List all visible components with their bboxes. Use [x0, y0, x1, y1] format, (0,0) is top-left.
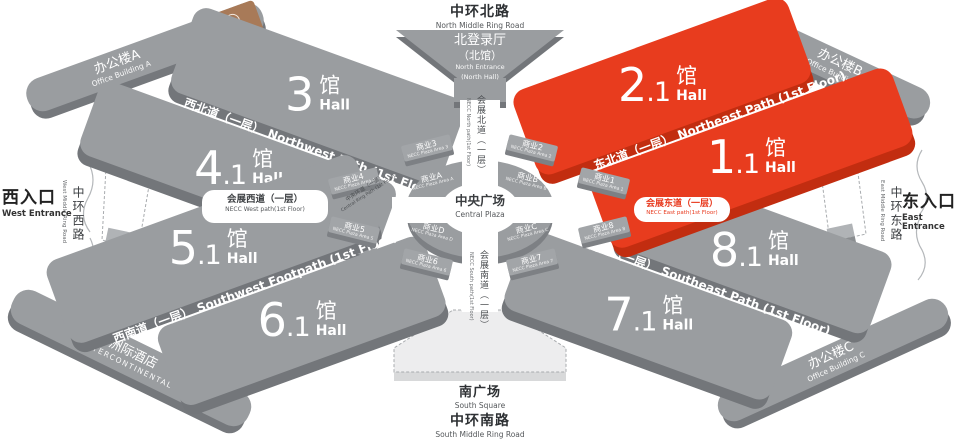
hall-2-1-label: 2.1 馆Hall: [618, 64, 707, 108]
necc-east-path-label: 会展东道（一层） NECC East path(1st Floor): [634, 197, 730, 222]
north-entrance-label: 北登录厅 （北馆） North Entrance (North Hall): [396, 34, 564, 80]
hall-en-suffix: Hall: [226, 252, 257, 267]
hall-7-1-label: 7.1 馆Hall: [604, 294, 693, 338]
west-entrance-label[interactable]: 西入口 West Entrance: [2, 190, 72, 219]
hall-cn-suffix: 馆: [676, 65, 707, 87]
hall-en-suffix: Hall: [320, 99, 351, 114]
hall-cn-suffix: 馆: [315, 300, 346, 322]
hall-cn-suffix: 馆: [768, 230, 799, 252]
east-ring-road-en: East Middle Ring Road: [879, 180, 885, 241]
necc-south-path-en: NECC South path(1st Floor): [468, 252, 474, 321]
hall-number: 2.1: [618, 64, 670, 108]
hall-en-suffix: Hall: [676, 89, 707, 104]
necc-venue-map: 办公楼A Office Building A 办公楼B Office Build…: [0, 0, 960, 440]
necc-south-path-zh: 会展南道（一层）: [477, 250, 490, 330]
hall-en-suffix: Hall: [768, 254, 799, 269]
east-entrance-label[interactable]: 东入口 East Entrance: [902, 194, 960, 231]
hall-cn-suffix: 馆: [765, 137, 796, 159]
hall-cn-suffix: 馆: [662, 295, 693, 317]
hall-number: 7.1: [604, 294, 656, 338]
necc-west-path-label: 会展西道（一层） NECC West path(1st Floor): [202, 190, 328, 223]
north-ring-road-label: 中环北路 North Middle Ring Road: [380, 5, 580, 30]
hall-number: 5.1: [168, 227, 220, 271]
hall-number: 8.1: [709, 229, 761, 273]
south-square-label: 南广场 South Square: [400, 386, 560, 410]
hall-5-1-label: 5.1 馆Hall: [168, 227, 257, 271]
necc-north-path-en: NECC North path(1st Floor): [465, 98, 471, 166]
hall-8-1-label: 8.1 馆Hall: [709, 229, 798, 273]
south-square-edge: [394, 372, 566, 381]
hall-en-suffix: Hall: [662, 319, 693, 334]
hall-number: 4.1: [194, 147, 246, 191]
west-ring-road-zh: 中环西路: [70, 186, 87, 242]
south-ring-road-label: 中环南路 South Middle Ring Road: [400, 414, 560, 439]
necc-north-path-zh: 会展北道（一层）: [474, 95, 487, 175]
hall-cn-suffix: 馆: [252, 148, 283, 170]
hall-number: 3: [285, 74, 313, 118]
hall-1-1-label: 1.1 馆Hall: [707, 136, 796, 180]
hall-3-label: 3 馆Hall: [285, 74, 350, 118]
hall-en-suffix: Hall: [765, 161, 796, 176]
hall-en-suffix: Hall: [315, 324, 346, 339]
hall-cn-suffix: 馆: [320, 75, 351, 97]
hall-cn-suffix: 馆: [226, 228, 257, 250]
hall-number: 1.1: [707, 136, 759, 180]
hall-6-1-label: 6.1 馆Hall: [257, 299, 346, 343]
central-plaza-label: 中央广场 Central Plaza: [430, 190, 530, 219]
hall-number: 6.1: [257, 299, 309, 343]
